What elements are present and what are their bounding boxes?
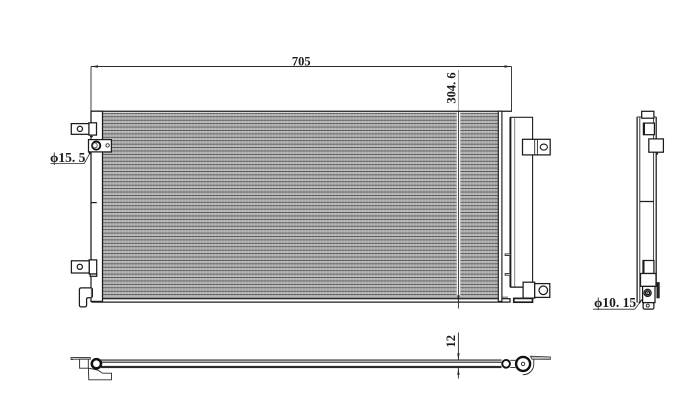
svg-text:ϕ10. 15: ϕ10. 15 bbox=[594, 295, 636, 310]
svg-text:12: 12 bbox=[444, 335, 458, 348]
svg-text:304. 6: 304. 6 bbox=[445, 72, 459, 103]
svg-text:ϕ15. 5: ϕ15. 5 bbox=[50, 150, 86, 165]
